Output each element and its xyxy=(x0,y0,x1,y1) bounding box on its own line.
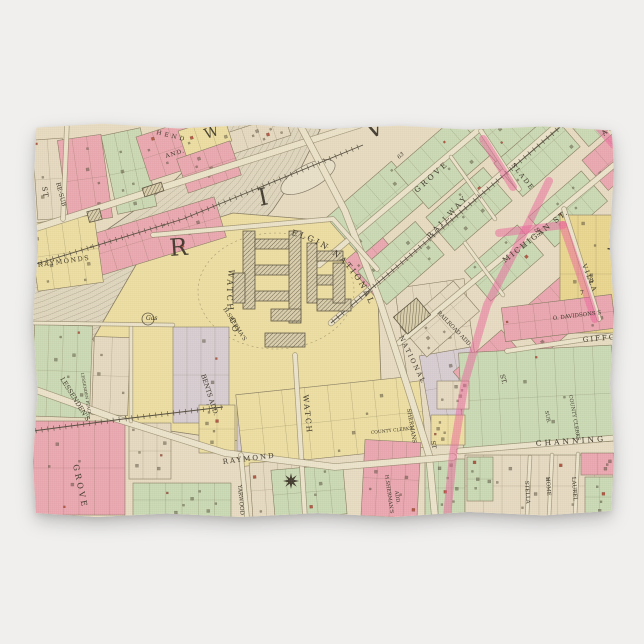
block xyxy=(585,477,614,517)
towel-fabric: RIVWHHENDAND.RE-SUBSTRAYMONDSLESSENDEN'S… xyxy=(33,123,614,517)
map-label: Gas xyxy=(146,315,157,322)
block xyxy=(459,345,614,449)
block xyxy=(92,336,131,415)
map-label: ST xyxy=(429,440,437,449)
product-photo-background: RIVWHHENDAND.RE-SUBSTRAYMONDSLESSENDEN'S… xyxy=(0,0,644,644)
map-label: 7 xyxy=(580,290,584,297)
block xyxy=(581,453,614,475)
vintage-plat-map: RIVWHHENDAND.RE-SUBSTRAYMONDSLESSENDEN'S… xyxy=(33,123,614,517)
block xyxy=(133,483,231,517)
map-label: 8 xyxy=(589,277,593,285)
river-letter: R xyxy=(168,233,189,262)
block xyxy=(467,457,493,501)
compass-star xyxy=(283,473,299,489)
map-towel: RIVWHHENDAND.RE-SUBSTRAYMONDSLESSENDEN'S… xyxy=(33,123,614,517)
block xyxy=(271,464,347,517)
